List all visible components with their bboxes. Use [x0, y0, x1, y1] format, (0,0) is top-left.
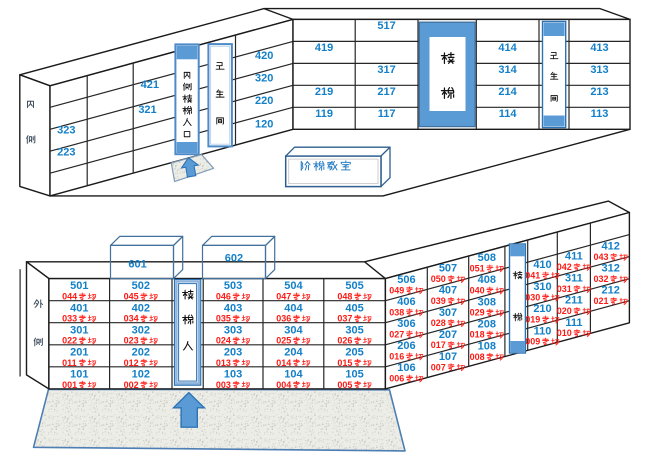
svg-text:044: 044 — [62, 292, 77, 302]
svg-text:111: 111 — [565, 317, 582, 329]
svg-text:035: 035 — [216, 314, 231, 324]
svg-text:206: 206 — [397, 340, 415, 352]
svg-text:413: 413 — [590, 42, 608, 54]
svg-text:007: 007 — [431, 362, 446, 372]
svg-text:102: 102 — [132, 368, 150, 380]
svg-text:002: 002 — [124, 380, 139, 390]
svg-text:018: 018 — [470, 330, 485, 340]
svg-text:019: 019 — [525, 315, 540, 325]
svg-text:008: 008 — [470, 352, 485, 362]
svg-text:037: 037 — [337, 314, 352, 324]
svg-text:113: 113 — [591, 108, 609, 120]
svg-text:039: 039 — [431, 296, 446, 306]
svg-text:023: 023 — [124, 336, 139, 346]
svg-text:212: 212 — [602, 285, 620, 297]
svg-text:407: 407 — [439, 285, 457, 297]
svg-text:204: 204 — [284, 346, 303, 358]
svg-text:034: 034 — [124, 314, 139, 324]
svg-text:504: 504 — [284, 280, 303, 292]
svg-text:108: 108 — [478, 340, 496, 352]
svg-text:021: 021 — [594, 296, 609, 306]
svg-text:040: 040 — [470, 286, 485, 296]
svg-text:036: 036 — [276, 314, 291, 324]
svg-text:107: 107 — [439, 351, 457, 363]
svg-text:602: 602 — [225, 253, 243, 265]
svg-text:105: 105 — [345, 368, 363, 380]
svg-text:016: 016 — [389, 352, 404, 362]
svg-text:210: 210 — [533, 303, 551, 315]
svg-text:050: 050 — [431, 274, 446, 284]
svg-text:028: 028 — [431, 318, 446, 328]
svg-text:009: 009 — [525, 337, 540, 347]
svg-text:311: 311 — [565, 273, 583, 285]
svg-text:046: 046 — [216, 292, 231, 302]
svg-text:015: 015 — [337, 358, 352, 368]
svg-text:029: 029 — [470, 308, 485, 318]
svg-text:503: 503 — [224, 280, 242, 292]
svg-text:032: 032 — [594, 274, 609, 284]
svg-text:104: 104 — [284, 368, 303, 380]
svg-text:412: 412 — [602, 241, 620, 253]
svg-text:321: 321 — [138, 104, 156, 116]
svg-text:507: 507 — [439, 263, 457, 275]
svg-text:303: 303 — [224, 324, 242, 336]
svg-text:110: 110 — [534, 325, 552, 337]
svg-text:203: 203 — [224, 346, 242, 358]
svg-text:505: 505 — [345, 280, 363, 292]
svg-text:012: 012 — [124, 358, 139, 368]
svg-text:119: 119 — [315, 108, 333, 120]
svg-text:041: 041 — [525, 271, 540, 281]
svg-text:223: 223 — [57, 146, 75, 158]
svg-text:314: 314 — [498, 64, 517, 76]
svg-text:517: 517 — [377, 20, 395, 32]
svg-text:501: 501 — [70, 280, 88, 292]
svg-text:027: 027 — [389, 329, 404, 339]
svg-text:205: 205 — [345, 346, 363, 358]
svg-text:031: 031 — [557, 284, 572, 294]
svg-text:025: 025 — [276, 336, 291, 346]
svg-text:410: 410 — [533, 259, 551, 271]
svg-text:406: 406 — [397, 296, 415, 308]
svg-text:302: 302 — [132, 324, 150, 336]
svg-text:213: 213 — [590, 86, 608, 98]
svg-text:312: 312 — [602, 263, 620, 275]
svg-text:323: 323 — [57, 124, 75, 136]
svg-text:219: 219 — [315, 86, 333, 98]
svg-text:005: 005 — [337, 380, 352, 390]
svg-text:214: 214 — [498, 86, 517, 98]
svg-text:103: 103 — [224, 368, 242, 380]
svg-text:014: 014 — [276, 358, 291, 368]
svg-text:408: 408 — [478, 274, 496, 286]
svg-text:024: 024 — [216, 336, 231, 346]
svg-text:001: 001 — [62, 380, 77, 390]
svg-text:011: 011 — [62, 358, 77, 368]
svg-text:403: 403 — [224, 302, 242, 314]
svg-text:313: 313 — [590, 64, 608, 76]
svg-text:033: 033 — [62, 314, 77, 324]
svg-text:013: 013 — [216, 358, 231, 368]
svg-text:020: 020 — [557, 306, 572, 316]
svg-text:404: 404 — [284, 302, 303, 314]
svg-text:114: 114 — [499, 108, 518, 120]
svg-text:010: 010 — [557, 328, 572, 338]
svg-text:042: 042 — [557, 262, 572, 272]
svg-text:101: 101 — [70, 368, 88, 380]
svg-text:308: 308 — [478, 296, 496, 308]
svg-text:017: 017 — [431, 340, 446, 350]
svg-text:217: 217 — [377, 86, 395, 98]
svg-text:026: 026 — [337, 336, 352, 346]
svg-text:048: 048 — [337, 292, 352, 302]
svg-text:502: 502 — [132, 280, 150, 292]
svg-text:411: 411 — [565, 251, 583, 263]
svg-text:301: 301 — [70, 324, 88, 336]
svg-text:208: 208 — [478, 318, 496, 330]
svg-text:211: 211 — [565, 295, 583, 307]
svg-text:601: 601 — [128, 259, 146, 271]
svg-text:220: 220 — [255, 95, 273, 107]
svg-text:047: 047 — [276, 292, 291, 302]
svg-text:305: 305 — [345, 324, 363, 336]
svg-text:117: 117 — [378, 108, 396, 120]
svg-text:004: 004 — [276, 380, 291, 390]
svg-text:508: 508 — [478, 252, 496, 264]
svg-text:201: 201 — [70, 346, 88, 358]
svg-text:307: 307 — [439, 307, 457, 319]
svg-text:402: 402 — [132, 302, 150, 314]
svg-text:306: 306 — [397, 318, 415, 330]
svg-text:506: 506 — [397, 274, 415, 286]
svg-text:106: 106 — [397, 362, 415, 374]
svg-text:401: 401 — [70, 302, 88, 314]
svg-text:310: 310 — [533, 281, 551, 293]
svg-text:304: 304 — [284, 324, 303, 336]
svg-text:003: 003 — [216, 380, 231, 390]
svg-text:120: 120 — [255, 118, 273, 130]
svg-text:202: 202 — [132, 346, 150, 358]
svg-text:320: 320 — [255, 73, 273, 85]
svg-text:414: 414 — [498, 42, 517, 54]
svg-text:421: 421 — [141, 79, 159, 91]
svg-text:207: 207 — [439, 329, 457, 341]
svg-text:049: 049 — [389, 285, 404, 295]
svg-text:420: 420 — [255, 50, 273, 62]
svg-text:030: 030 — [525, 293, 540, 303]
svg-text:043: 043 — [594, 252, 609, 262]
svg-text:038: 038 — [389, 307, 404, 317]
svg-text:317: 317 — [377, 64, 395, 76]
svg-text:022: 022 — [62, 336, 77, 346]
svg-text:419: 419 — [315, 42, 333, 54]
svg-text:051: 051 — [470, 264, 485, 274]
svg-text:006: 006 — [389, 374, 404, 384]
svg-text:045: 045 — [124, 292, 139, 302]
svg-text:405: 405 — [345, 302, 363, 314]
